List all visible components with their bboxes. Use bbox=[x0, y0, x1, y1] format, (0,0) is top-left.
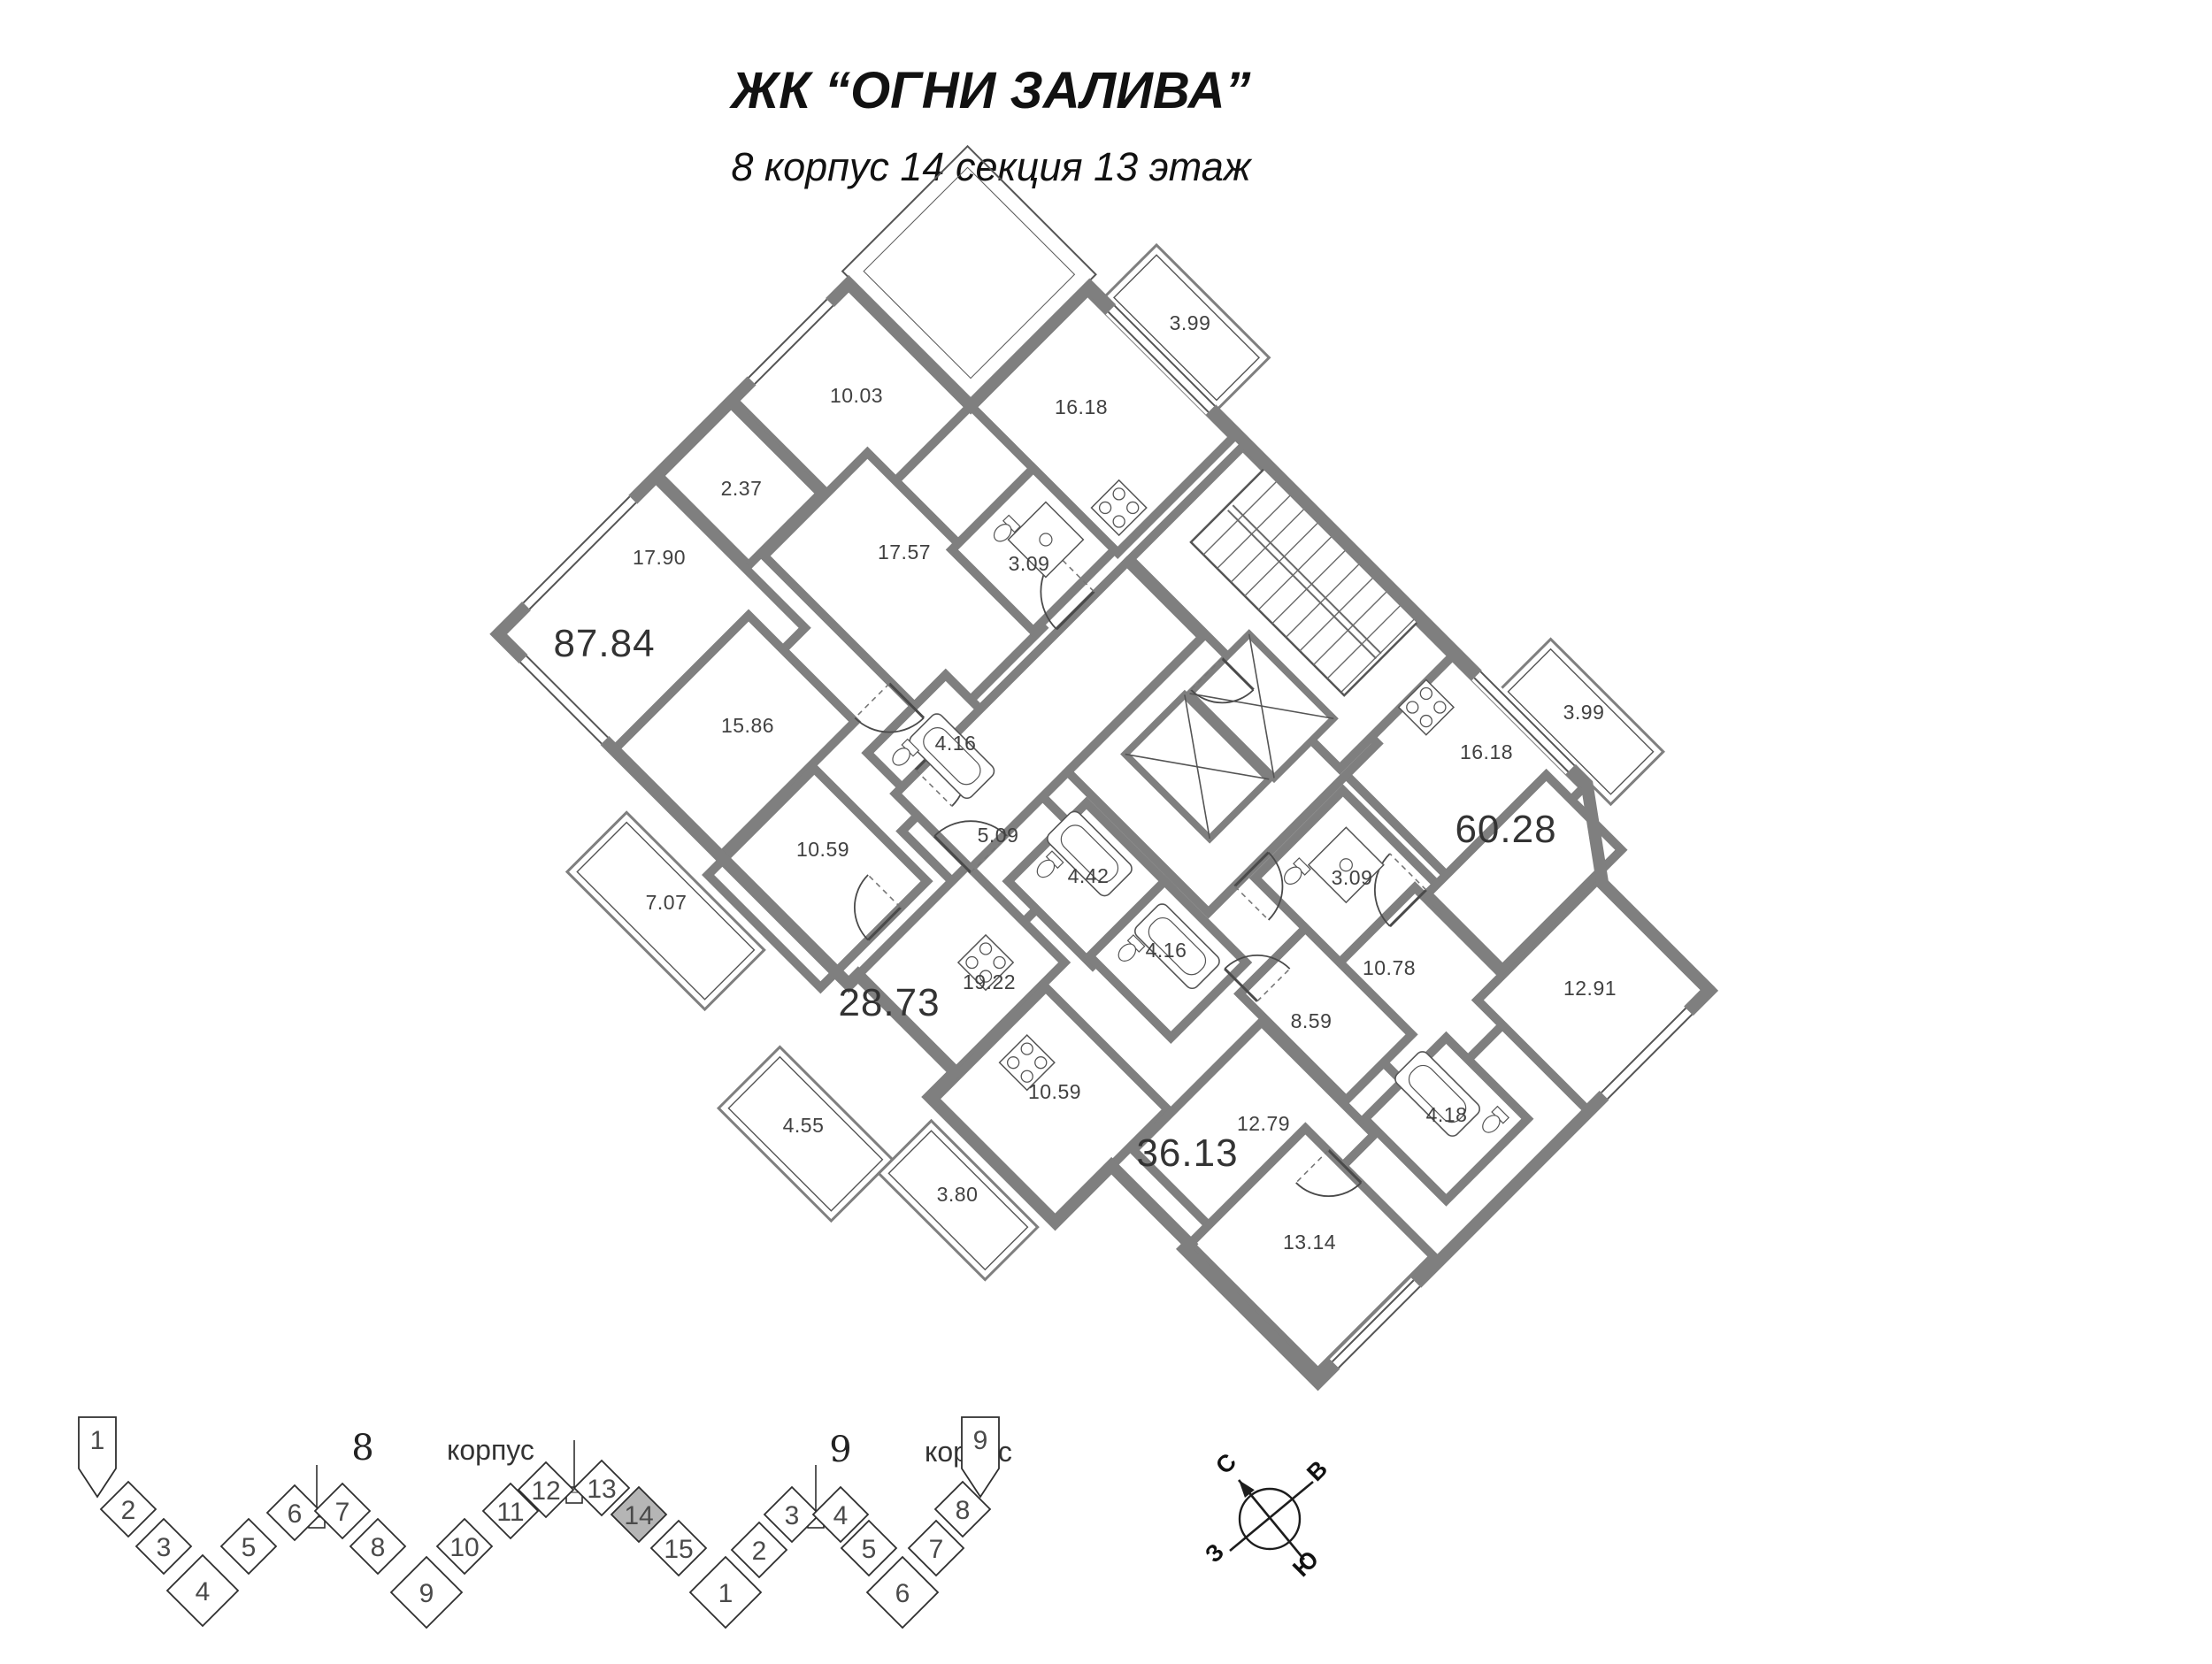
room-area-label: 3.99 bbox=[1170, 311, 1211, 334]
building-word-label: корпус bbox=[447, 1434, 534, 1466]
minimap-section-number: 3 bbox=[157, 1533, 172, 1562]
compass-letter: З bbox=[1200, 1538, 1229, 1568]
minimap-section-number: 14 bbox=[624, 1501, 653, 1530]
minimap-section-number: 8 bbox=[956, 1496, 971, 1525]
minimap-section-number: 6 bbox=[288, 1499, 303, 1529]
room-area-label: 3.09 bbox=[1332, 866, 1373, 889]
minimap-section-number: 7 bbox=[929, 1535, 944, 1564]
minimap-section-number: 4 bbox=[833, 1501, 849, 1530]
room-area-label: 19.22 bbox=[963, 970, 1016, 993]
compass-letter: С bbox=[1210, 1448, 1241, 1479]
apartment-total-area-label: 87.84 bbox=[553, 622, 655, 665]
minimap-section-number: 10 bbox=[449, 1533, 479, 1562]
door-threshold-dashes bbox=[855, 684, 889, 718]
plan-rotated-layer bbox=[362, 101, 1811, 1550]
minimap-layer: 8корпус9корпус12345678910111213141512345… bbox=[79, 1417, 1012, 1628]
room-area-label: 15.86 bbox=[721, 714, 774, 737]
minimap-section-number: 1 bbox=[718, 1579, 733, 1608]
minimap-section-number: 9 bbox=[973, 1426, 988, 1455]
minimap-section-number: 13 bbox=[587, 1475, 616, 1504]
room-area-label: 5.09 bbox=[978, 824, 1019, 847]
room-area-label: 10.59 bbox=[1028, 1080, 1081, 1103]
minimap-section-number: 12 bbox=[531, 1476, 560, 1506]
room-area-label: 3.09 bbox=[1009, 552, 1050, 575]
minimap-section-number: 9 bbox=[419, 1579, 434, 1608]
room-area-label: 4.18 bbox=[1426, 1103, 1468, 1126]
room-area-label: 8.59 bbox=[1291, 1009, 1333, 1032]
building-number-label: 8 bbox=[351, 1428, 373, 1468]
floor-plan-figure: ЖК “ОГНИ ЗАЛИВА” 8 корпус 14 секция 13 э… bbox=[0, 0, 2212, 1664]
room-area-label: 4.42 bbox=[1068, 864, 1110, 887]
room-area-label: 10.78 bbox=[1363, 956, 1416, 979]
room-area-label: 17.57 bbox=[878, 541, 931, 564]
room-area-label: 16.18 bbox=[1055, 395, 1108, 418]
room-area-label: 12.79 bbox=[1237, 1112, 1290, 1135]
room-area-label: 10.59 bbox=[796, 838, 849, 861]
minimap-section-number: 1 bbox=[90, 1426, 105, 1455]
minimap-section-number: 4 bbox=[196, 1577, 211, 1606]
minimap-section-number: 8 bbox=[371, 1533, 386, 1562]
room-area-label: 16.18 bbox=[1460, 740, 1513, 763]
room-area-label: 2.37 bbox=[721, 477, 763, 500]
minimap-section-number: 6 bbox=[895, 1579, 910, 1608]
plan-walls bbox=[362, 101, 1811, 1550]
minimap-section-number: 3 bbox=[785, 1501, 800, 1530]
room-area-label: 12.91 bbox=[1563, 977, 1617, 1000]
room-area-label: 3.80 bbox=[937, 1183, 979, 1206]
compass-letter: В bbox=[1302, 1455, 1333, 1486]
apartment-total-area-label: 60.28 bbox=[1455, 808, 1556, 851]
minimap-section-number: 7 bbox=[335, 1498, 350, 1527]
building-number-label: 9 bbox=[829, 1430, 851, 1470]
compass-letter: Ю bbox=[1287, 1545, 1324, 1582]
minimap-section-number: 2 bbox=[752, 1537, 767, 1566]
minimap-section-number: 15 bbox=[664, 1535, 693, 1564]
apartment-total-area-label: 36.13 bbox=[1136, 1131, 1238, 1175]
room-area-label: 17.90 bbox=[633, 546, 686, 569]
minimap-section-number: 5 bbox=[242, 1533, 257, 1562]
compass-rose: СВЗЮ bbox=[1200, 1448, 1333, 1582]
room-area-label: 4.55 bbox=[783, 1114, 825, 1137]
page-subtitle: 8 корпус 14 секция 13 этаж bbox=[731, 144, 1252, 189]
room-area-label: 4.16 bbox=[1146, 939, 1187, 962]
minimap-section-number: 5 bbox=[862, 1535, 877, 1564]
minimap-section-number: 11 bbox=[496, 1498, 524, 1527]
room-area-label: 3.99 bbox=[1563, 701, 1605, 724]
room-area-label: 7.07 bbox=[646, 891, 687, 914]
minimap-section-number: 2 bbox=[121, 1496, 136, 1525]
page-title: ЖК “ОГНИ ЗАЛИВА” bbox=[729, 62, 1251, 119]
apartment-total-area-label: 28.73 bbox=[838, 981, 940, 1024]
room-area-label: 13.14 bbox=[1283, 1231, 1336, 1254]
room-area-label: 4.16 bbox=[935, 732, 977, 755]
room-area-label: 10.03 bbox=[830, 384, 883, 407]
floor-plan-page: ЖК “ОГНИ ЗАЛИВА” 8 корпус 14 секция 13 э… bbox=[0, 0, 2212, 1664]
